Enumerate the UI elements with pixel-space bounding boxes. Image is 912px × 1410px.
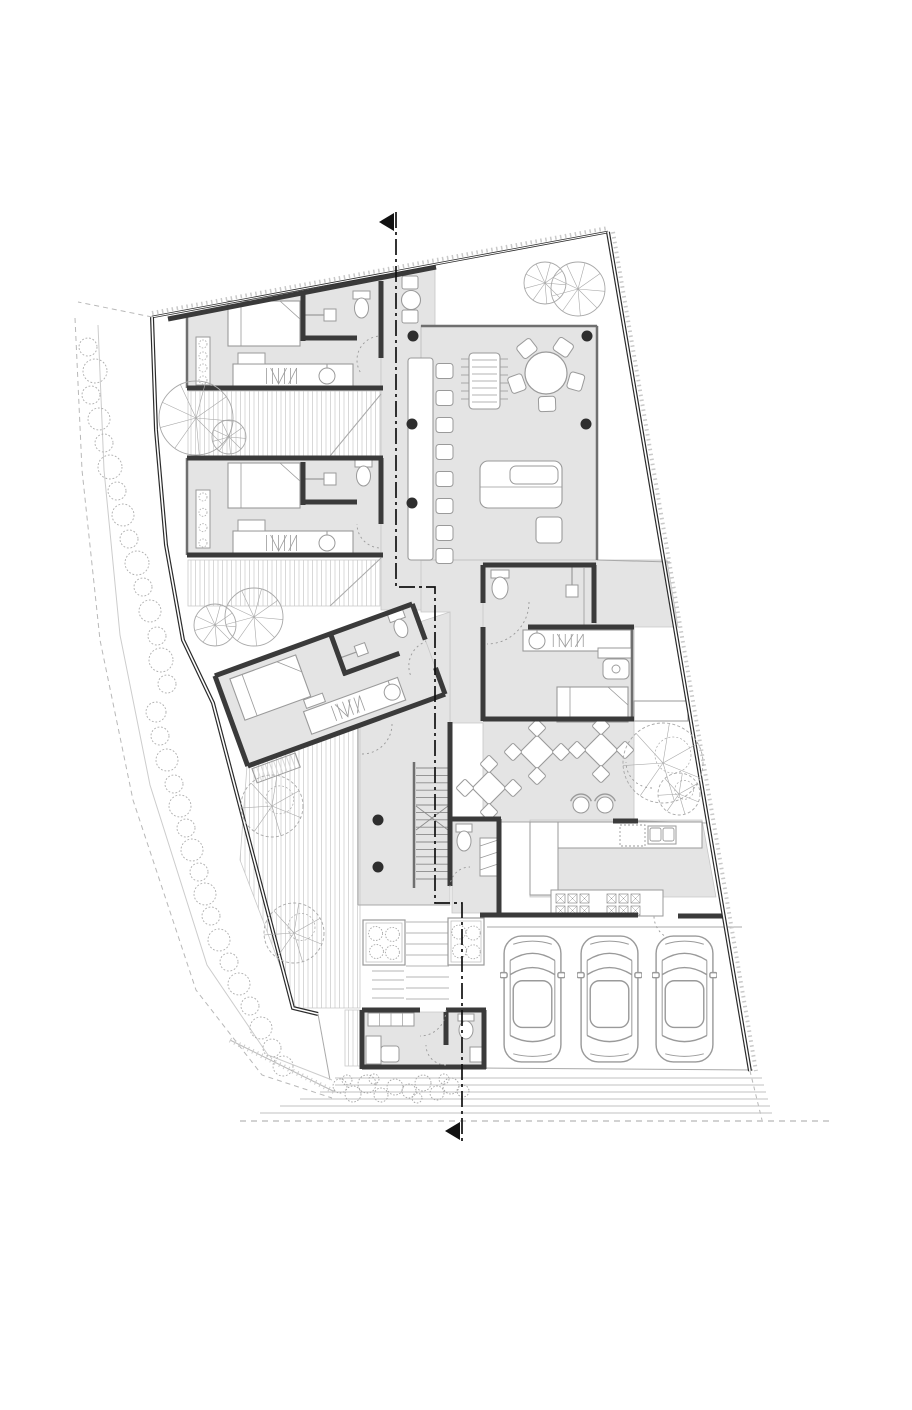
floor-plan-page bbox=[0, 0, 912, 1410]
floor-plan-canvas bbox=[0, 0, 912, 1410]
parked-cars bbox=[500, 936, 717, 1062]
